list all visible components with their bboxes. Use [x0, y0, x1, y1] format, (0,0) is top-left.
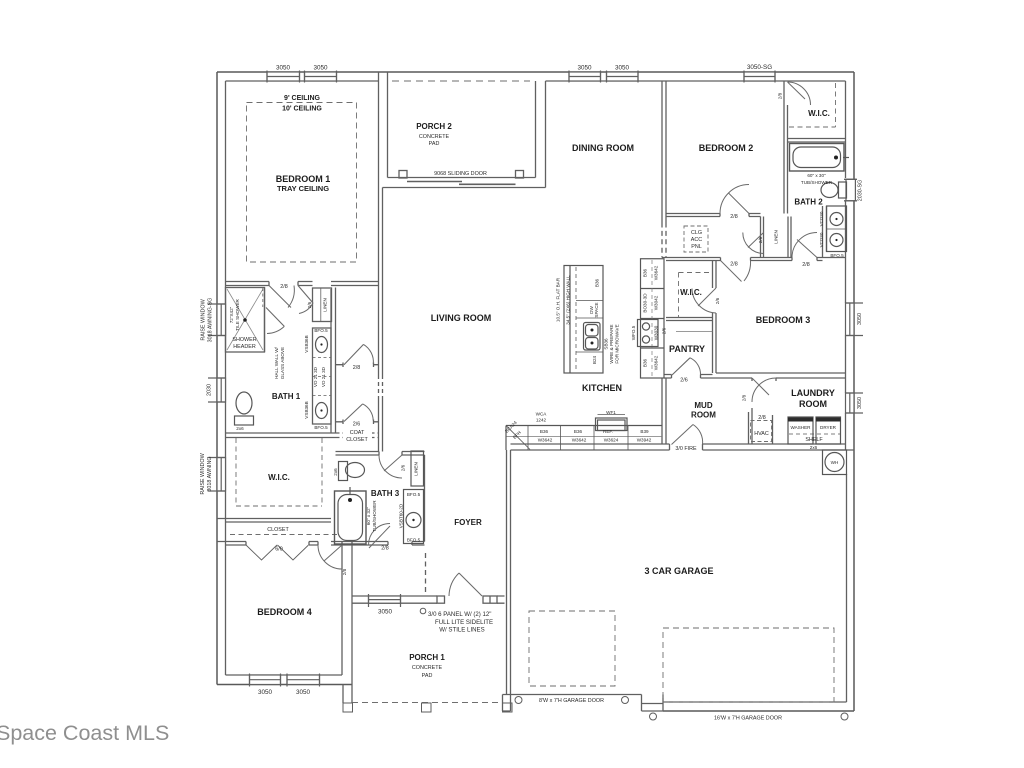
svg-text:2/6: 2/6 [715, 297, 720, 304]
svg-text:2/8: 2/8 [730, 262, 738, 268]
svg-text:SHELF: SHELF [805, 437, 823, 443]
svg-text:ROOM: ROOM [799, 399, 827, 409]
svg-text:3050: 3050 [577, 65, 592, 72]
svg-text:W3624: W3624 [604, 438, 619, 443]
svg-text:TUB/SHOWER: TUB/SHOWER [801, 180, 833, 185]
svg-text:KITCHEN: KITCHEN [582, 383, 622, 393]
svg-text:RAISE WINDOW: RAISE WINDOW [200, 452, 206, 494]
svg-text:W.I.C.: W.I.C. [680, 288, 702, 297]
svg-text:BEDROOM 2: BEDROOM 2 [699, 143, 754, 153]
svg-text:2030-SG: 2030-SG [858, 180, 864, 202]
svg-text:REF.: REF. [603, 429, 613, 434]
svg-text:2/6: 2/6 [401, 464, 406, 471]
svg-text:HALL WALL W/: HALL WALL W/ [274, 346, 279, 378]
svg-text:TILE SHOWER: TILE SHOWER [235, 298, 240, 330]
svg-text:VCD30: VCD30 [819, 211, 824, 226]
svg-text:CLOSET: CLOSET [346, 437, 368, 443]
svg-text:2x6: 2x6 [236, 426, 244, 431]
svg-text:60" x 32": 60" x 32" [366, 506, 371, 525]
svg-text:COAT: COAT [350, 430, 365, 436]
svg-text:FOYER: FOYER [454, 518, 482, 527]
svg-text:W3642: W3642 [538, 438, 553, 443]
svg-text:LIVING ROOM: LIVING ROOM [431, 313, 492, 323]
svg-text:2/8: 2/8 [342, 568, 347, 575]
svg-text:BEDROOM 1: BEDROOM 1 [276, 174, 331, 184]
svg-text:VSB36B: VSB36B [304, 335, 309, 352]
svg-text:60" x 30": 60" x 30" [807, 173, 826, 178]
svg-text:W3030: W3030 [654, 325, 659, 340]
svg-text:3/0 FIRE: 3/0 FIRE [675, 446, 697, 452]
svg-text:SB36: SB36 [604, 338, 609, 350]
svg-text:BFH: BFH [512, 430, 522, 440]
svg-text:ROOM: ROOM [691, 411, 716, 420]
svg-text:2/6: 2/6 [662, 327, 667, 334]
svg-text:W.I.C.: W.I.C. [808, 109, 830, 118]
svg-text:LINEN: LINEN [774, 230, 779, 244]
svg-text:Space Coast MLS: Space Coast MLS [0, 721, 169, 745]
svg-text:W3042: W3042 [654, 295, 659, 310]
svg-text:BFO.5: BFO.5 [407, 538, 421, 543]
svg-text:DINING ROOM: DINING ROOM [572, 143, 634, 153]
svg-text:LINEN: LINEN [323, 298, 328, 312]
svg-text:WFO.5: WFO.5 [631, 325, 636, 340]
svg-text:2/8: 2/8 [730, 214, 738, 220]
svg-text:B36: B36 [643, 358, 648, 367]
svg-text:2/6: 2/6 [353, 422, 361, 428]
svg-text:3018 AWNING-SG: 3018 AWNING-SG [208, 298, 214, 343]
svg-text:3050: 3050 [378, 609, 393, 616]
svg-text:CLG: CLG [691, 230, 702, 236]
svg-text:W.I.C.: W.I.C. [268, 473, 290, 482]
svg-text:72"X42": 72"X42" [229, 306, 234, 323]
svg-text:VD 21 3D: VD 21 3D [313, 366, 318, 387]
svg-text:FULL LITE SIDELITE: FULL LITE SIDELITE [435, 619, 493, 626]
svg-text:VD 21 3D: VD 21 3D [321, 366, 326, 387]
svg-text:3 CAR GARAGE: 3 CAR GARAGE [644, 566, 713, 576]
svg-text:9068 SLIDING DOOR: 9068 SLIDING DOOR [434, 171, 487, 177]
svg-text:2030: 2030 [207, 384, 213, 396]
svg-text:PORCH 1: PORCH 1 [409, 653, 445, 662]
svg-text:WH: WH [831, 460, 839, 465]
svg-text:3050: 3050 [296, 689, 311, 696]
svg-text:W3942: W3942 [637, 438, 652, 443]
svg-text:10.5" O.H. FLAT BAR: 10.5" O.H. FLAT BAR [556, 277, 561, 322]
svg-text:HVAC: HVAC [754, 431, 769, 437]
svg-text:BEDROOM 4: BEDROOM 4 [257, 607, 312, 617]
svg-text:BFO.5: BFO.5 [830, 253, 844, 258]
svg-text:3050: 3050 [857, 313, 863, 325]
svg-text:10' CEILING: 10' CEILING [282, 106, 322, 113]
svg-text:3/0 6 PANEL W/ (2) 12": 3/0 6 PANEL W/ (2) 12" [428, 611, 491, 618]
svg-text:BATH 2: BATH 2 [794, 198, 823, 207]
svg-text:2/6: 2/6 [307, 301, 312, 308]
svg-text:CONCRETE: CONCRETE [419, 134, 450, 140]
svg-text:WIRE & PREPARE: WIRE & PREPARE [609, 324, 614, 363]
svg-text:BO30-3D: BO30-3D [643, 293, 648, 313]
svg-text:LAUNDRY: LAUNDRY [791, 388, 835, 398]
svg-text:2/8: 2/8 [381, 546, 389, 552]
svg-text:LINEN: LINEN [414, 462, 419, 476]
svg-text:3050: 3050 [313, 65, 328, 72]
svg-text:W3642: W3642 [572, 438, 587, 443]
svg-text:8'W x 7'H GARAGE DOOR: 8'W x 7'H GARAGE DOOR [539, 698, 604, 704]
svg-text:B39: B39 [640, 429, 649, 434]
svg-text:BATH 3: BATH 3 [371, 489, 400, 498]
svg-text:2/8: 2/8 [353, 365, 361, 371]
svg-text:3050: 3050 [615, 65, 630, 72]
svg-text:PAD: PAD [422, 673, 433, 679]
svg-text:1242: 1242 [536, 418, 547, 423]
svg-text:B36: B36 [540, 429, 549, 434]
svg-text:PAD: PAD [429, 141, 440, 147]
svg-text:B36: B36 [595, 278, 600, 287]
svg-text:HEADER: HEADER [233, 344, 256, 350]
svg-text:6/0: 6/0 [275, 547, 283, 553]
svg-text:2/8: 2/8 [742, 394, 747, 401]
svg-text:TUB/SHOWER: TUB/SHOWER [372, 500, 377, 532]
svg-text:BEDROOM 3: BEDROOM 3 [756, 315, 811, 325]
svg-text:2/8: 2/8 [778, 92, 783, 99]
svg-text:B24: B24 [592, 355, 597, 364]
svg-text:16'W x 7'H GARAGE DOOR: 16'W x 7'H GARAGE DOOR [714, 716, 782, 722]
svg-text:PORCH 2: PORCH 2 [416, 122, 452, 131]
svg-text:BFO.5: BFO.5 [314, 328, 328, 333]
svg-text:2/6: 2/6 [680, 378, 688, 384]
svg-text:2/8: 2/8 [802, 262, 810, 268]
svg-text:VCD30: VCD30 [819, 232, 824, 247]
svg-text:SPACE: SPACE [594, 302, 599, 317]
svg-text:PNL: PNL [691, 244, 702, 250]
svg-text:3050: 3050 [857, 397, 863, 409]
svg-text:ACC: ACC [691, 237, 702, 243]
svg-text:2x6: 2x6 [810, 445, 818, 450]
svg-text:BFO.5: BFO.5 [407, 492, 421, 497]
svg-text:W3642: W3642 [654, 355, 659, 370]
svg-text:BATH 1: BATH 1 [272, 392, 301, 401]
svg-text:3018 AWNING: 3018 AWNING [207, 456, 213, 491]
svg-text:2/8: 2/8 [280, 284, 288, 290]
svg-text:3050: 3050 [276, 65, 291, 72]
svg-text:VSBT60-2D: VSBT60-2D [399, 503, 404, 528]
svg-text:FOR MICROWAVE: FOR MICROWAVE [615, 324, 620, 363]
svg-text:GLASS ABOVE: GLASS ABOVE [280, 347, 285, 379]
svg-text:B36: B36 [643, 268, 648, 277]
svg-text:PANTRY: PANTRY [669, 344, 705, 354]
svg-text:WASHER: WASHER [791, 425, 812, 430]
svg-text:MUD: MUD [694, 401, 712, 410]
svg-text:TRAY CEILING: TRAY CEILING [277, 184, 329, 193]
svg-text:WF1: WF1 [606, 410, 616, 415]
svg-text:9' CEILING: 9' CEILING [284, 95, 320, 102]
svg-text:2x6: 2x6 [333, 468, 338, 476]
svg-text:2/8: 2/8 [758, 415, 766, 421]
svg-text:VSB36B: VSB36B [304, 401, 309, 418]
svg-text:DRYER: DRYER [820, 425, 837, 430]
svg-text:3050: 3050 [258, 689, 273, 696]
svg-text:RAISE WINDOW: RAISE WINDOW [201, 298, 207, 340]
svg-text:WCA: WCA [536, 412, 548, 417]
svg-text:34.5" (2X6) HIGH WALL: 34.5" (2X6) HIGH WALL [566, 275, 571, 325]
svg-text:CLOSET: CLOSET [267, 527, 289, 533]
svg-text:BFO.5: BFO.5 [314, 425, 328, 430]
svg-text:W3642: W3642 [654, 265, 659, 280]
svg-text:B36: B36 [574, 429, 583, 434]
svg-text:W/ STILE LINES: W/ STILE LINES [439, 627, 484, 634]
svg-text:CONCRETE: CONCRETE [412, 665, 443, 671]
svg-text:SHOWER: SHOWER [232, 337, 256, 343]
svg-text:2/6: 2/6 [758, 236, 763, 243]
svg-text:3050-SG: 3050-SG [747, 64, 772, 71]
